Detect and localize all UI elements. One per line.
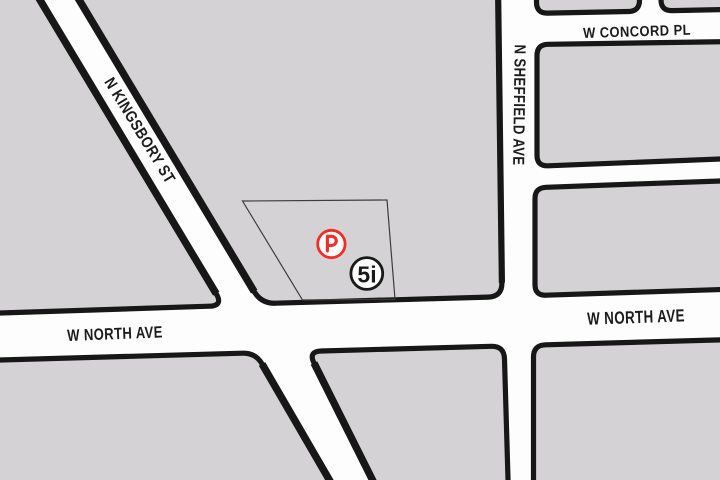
- svg-text:W CONCORD PL: W CONCORD PL: [583, 21, 691, 41]
- svg-text:5i: 5i: [357, 262, 376, 288]
- svg-text:W NORTH AVE: W NORTH AVE: [587, 307, 685, 330]
- svg-text:W NORTH AVE: W NORTH AVE: [67, 324, 163, 345]
- svg-text:N SHEFFIELD AVE: N SHEFFIELD AVE: [509, 44, 528, 165]
